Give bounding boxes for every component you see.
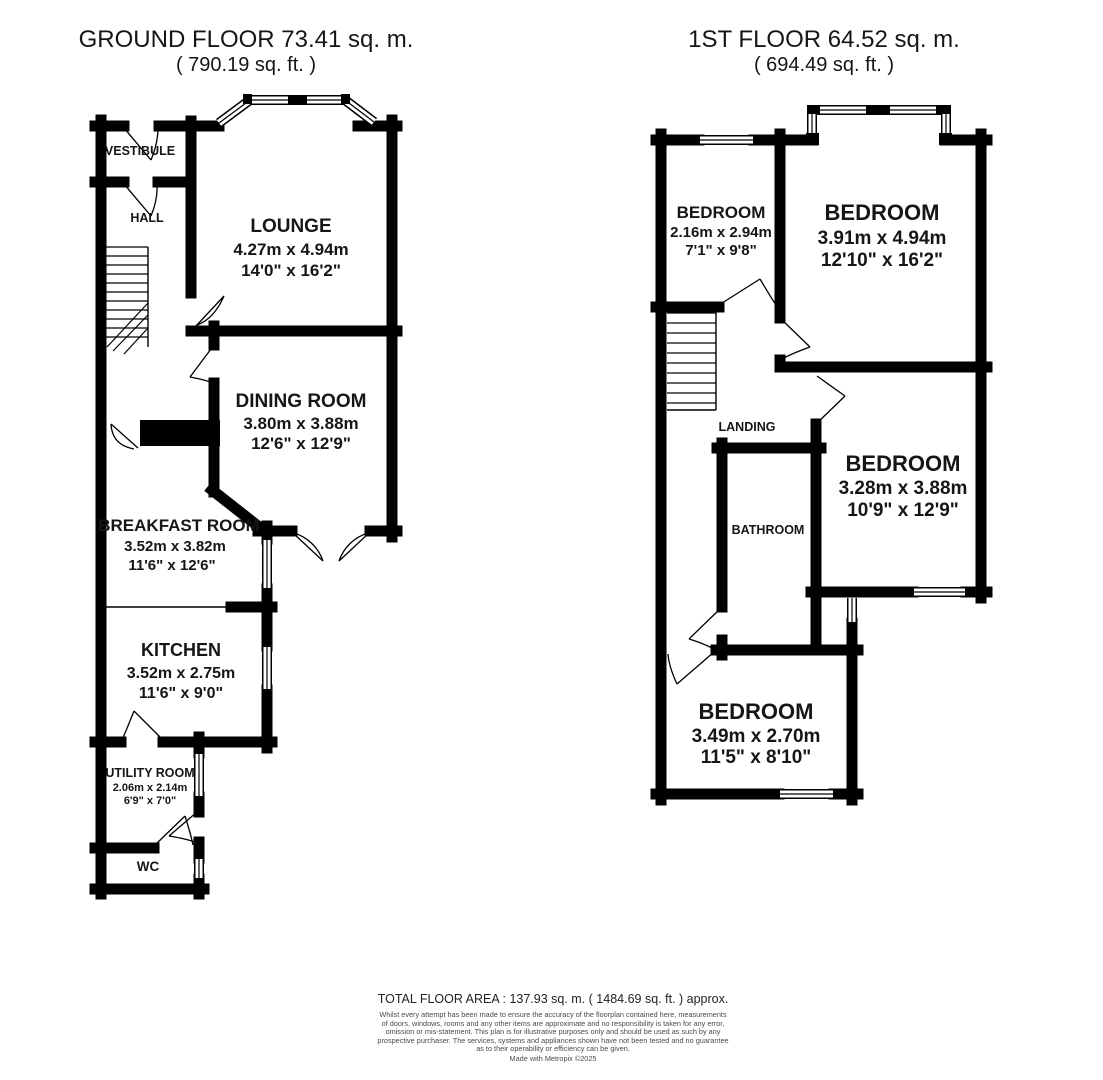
breakfast-room-label: BREAKFAST ROOM: [98, 516, 260, 535]
bedroom-front-large-imperial: 12'10" x 16'2": [821, 250, 943, 271]
lounge-metric: 4.27m x 4.94m: [233, 240, 348, 259]
ground-floor-subtitle: ( 790.19 sq. ft. ): [176, 54, 316, 76]
breakfast-room-imperial: 11'6" x 12'6": [128, 557, 215, 574]
ground-floor-title: GROUND FLOOR 73.41 sq. m.: [79, 26, 414, 53]
bedroom-front-small-label: BEDROOM: [677, 203, 766, 222]
lounge-label: LOUNGE: [250, 216, 331, 237]
vestibule-label: VESTIBULE: [105, 144, 175, 158]
bathroom-label: BATHROOM: [732, 523, 805, 537]
breakfast-room-metric: 3.52m x 3.82m: [124, 538, 226, 555]
hall-label: HALL: [130, 211, 164, 225]
chimney-breast-wall: [140, 420, 220, 446]
floorplan-page: GROUND FLOOR 73.41 sq. m. ( 790.19 sq. f…: [0, 0, 1103, 1080]
bedroom-rear-label: BEDROOM: [699, 699, 814, 724]
landing-label: LANDING: [719, 420, 776, 434]
bedroom-front-large-label: BEDROOM: [825, 200, 940, 225]
disclaimer-line: omission or mis-statement. This plan is …: [386, 1027, 721, 1036]
dining-room-metric: 3.80m x 3.88m: [243, 414, 358, 433]
utility-room-metric: 2.06m x 2.14m: [113, 782, 188, 794]
wc-label: WC: [137, 859, 160, 874]
bedroom-front-small-metric: 2.16m x 2.94m: [670, 224, 772, 241]
kitchen-label: KITCHEN: [141, 640, 221, 660]
bedroom-front-large-metric: 3.91m x 4.94m: [818, 228, 947, 249]
dining-room-label: DINING ROOM: [236, 391, 367, 412]
floorplan-drawing: GROUND FLOOR 73.41 sq. m. ( 790.19 sq. f…: [0, 0, 1103, 1080]
bedroom-front-small-imperial: 7'1" x 9'8": [685, 242, 756, 259]
utility-room-imperial: 6'9" x 7'0": [124, 795, 176, 807]
disclaimer-line: as to their operability or efficiency ca…: [476, 1044, 630, 1053]
bedroom-middle-imperial: 10'9" x 12'9": [847, 500, 959, 521]
lounge-imperial: 14'0" x 16'2": [241, 261, 341, 280]
dining-room-imperial: 12'6" x 12'9": [251, 434, 351, 453]
kitchen-imperial: 11'6" x 9'0": [139, 685, 223, 702]
total-floor-area: TOTAL FLOOR AREA : 137.93 sq. m. ( 1484.…: [378, 992, 729, 1006]
kitchen-metric: 3.52m x 2.75m: [127, 665, 236, 682]
first-floor-subtitle: ( 694.49 sq. ft. ): [754, 54, 894, 76]
bedroom-middle-label: BEDROOM: [846, 451, 961, 476]
utility-room-label: UTILITY ROOM: [105, 766, 194, 780]
bedroom-middle-metric: 3.28m x 3.88m: [839, 478, 968, 499]
disclaimer-line: Whilst every attempt has been made to en…: [379, 1010, 727, 1019]
bedroom-rear-metric: 3.49m x 2.70m: [692, 726, 821, 747]
bedroom-rear-imperial: 11'5" x 8'10": [701, 747, 812, 768]
first-floor-title: 1ST FLOOR 64.52 sq. m.: [688, 26, 960, 53]
credit-line: Made with Metropix ©2025: [510, 1054, 597, 1063]
